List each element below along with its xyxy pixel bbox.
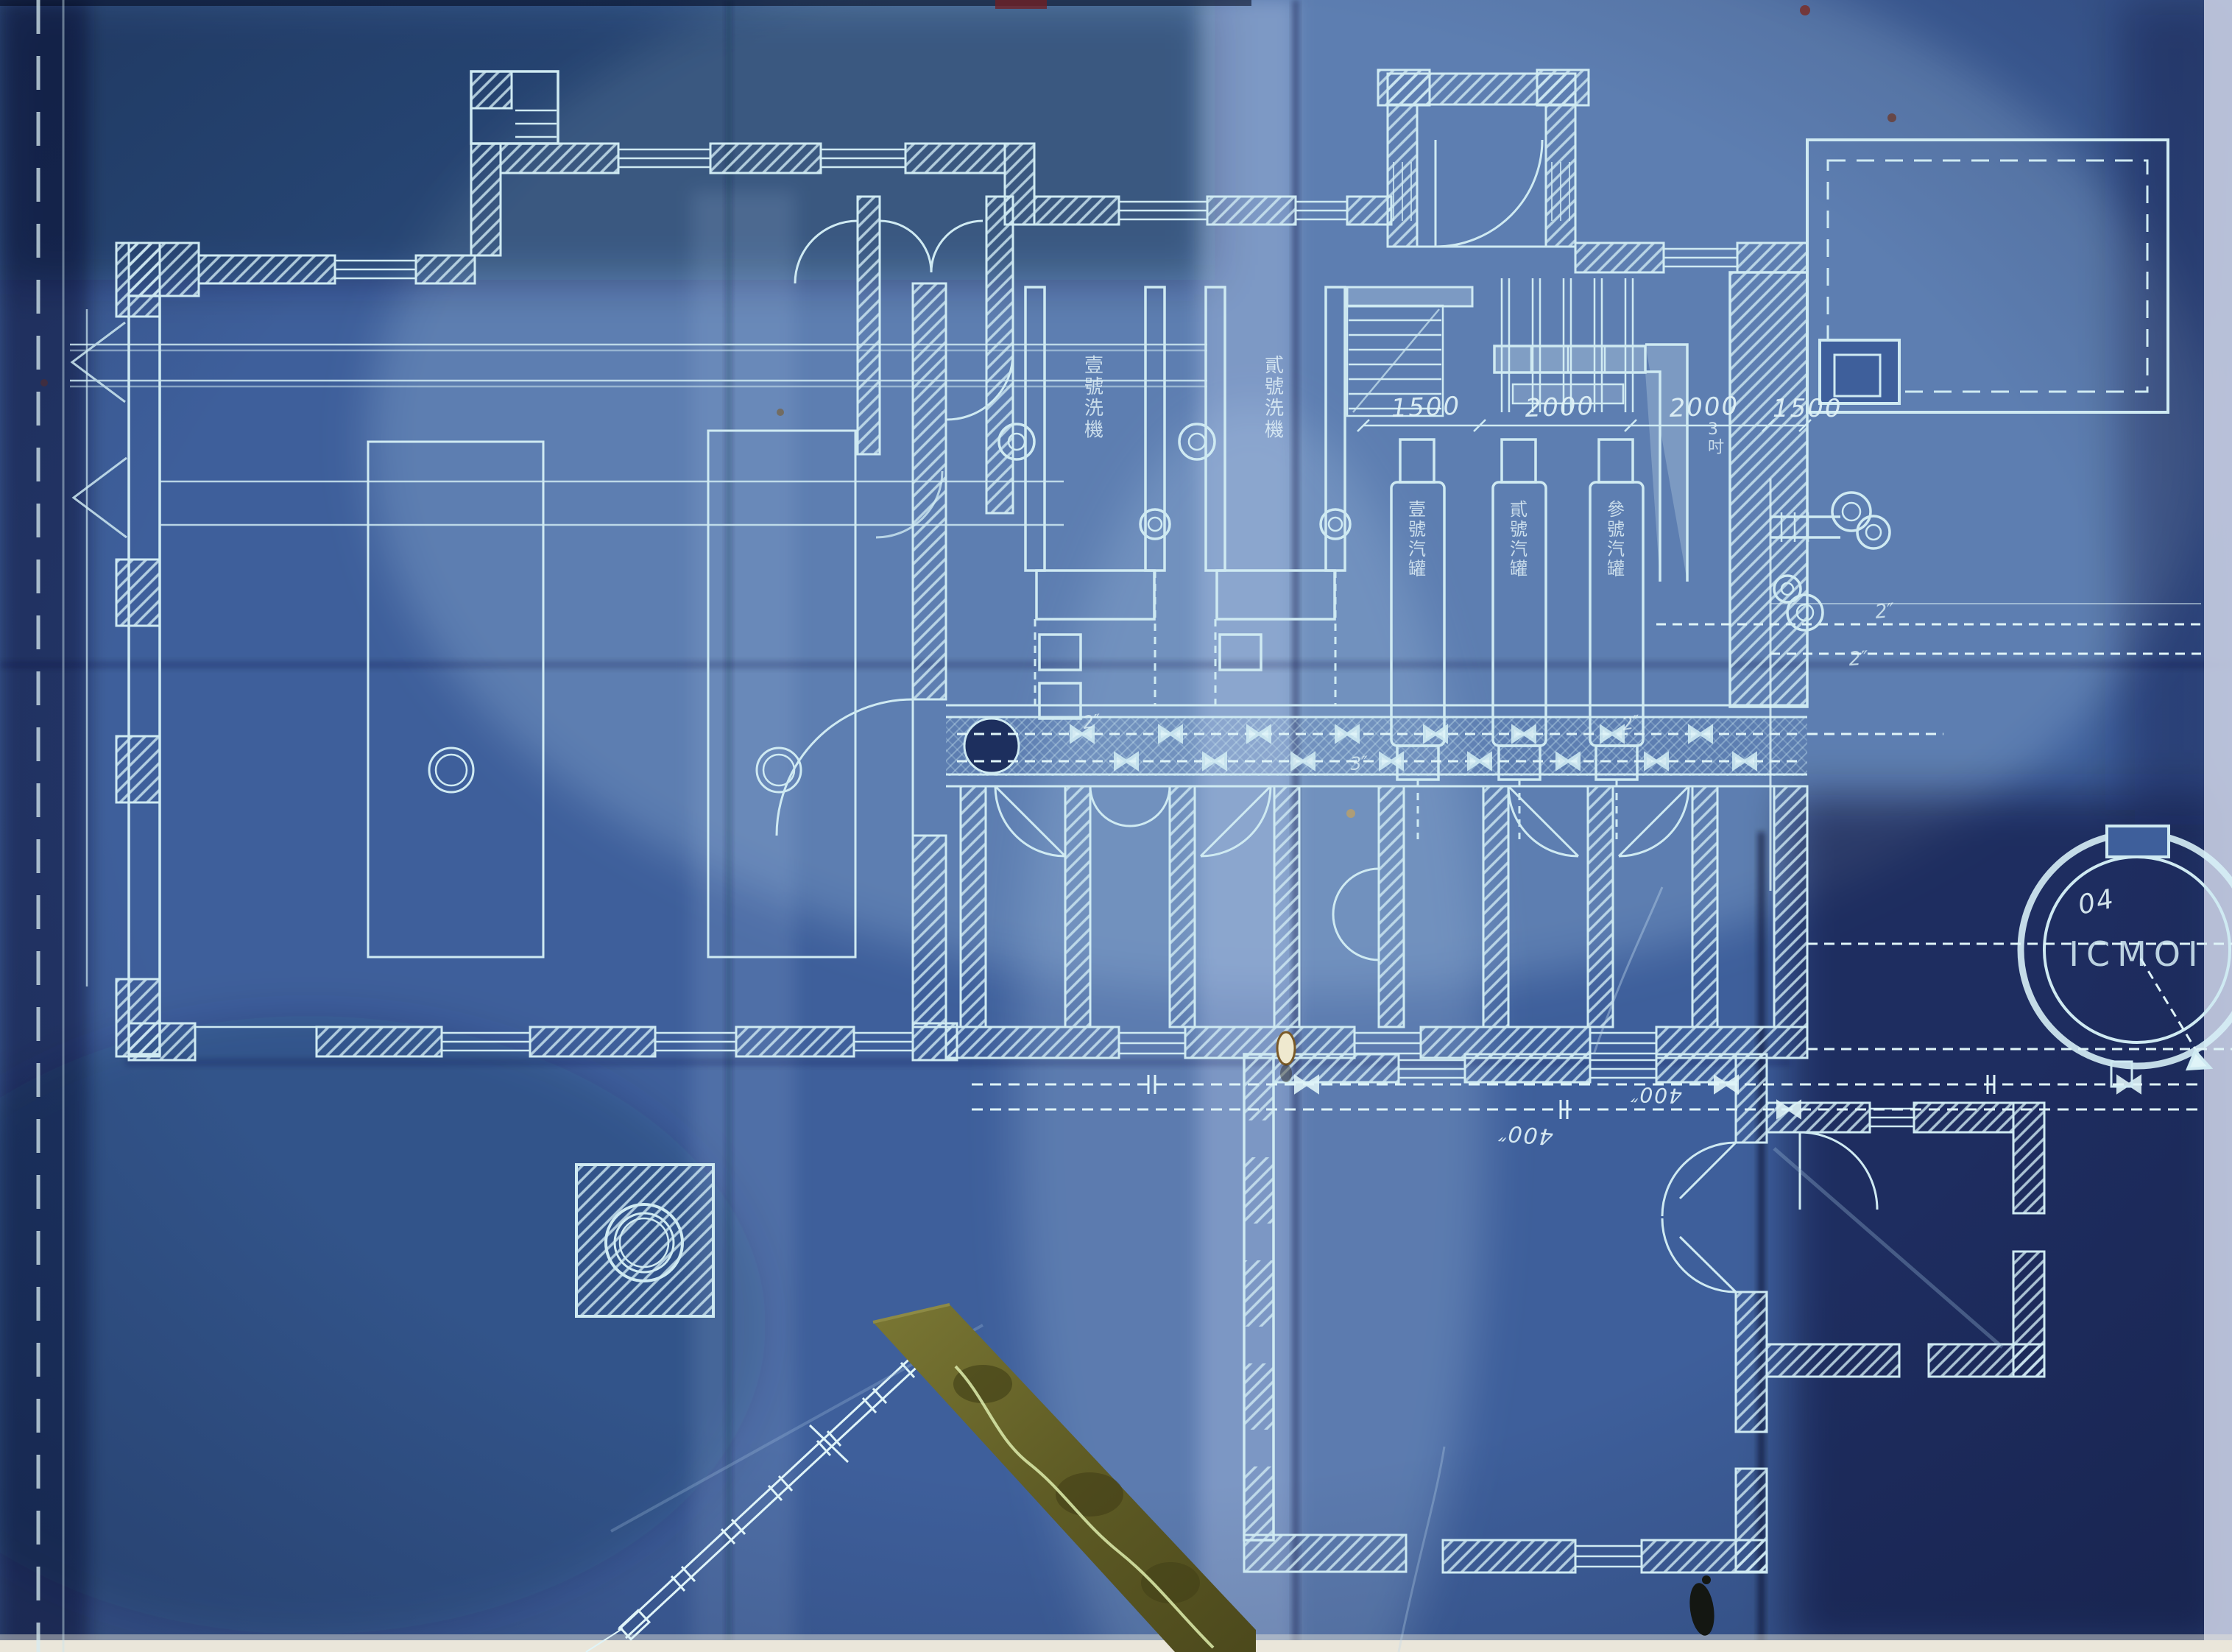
pipe-size-2: 3″ — [1349, 752, 1369, 774]
pipe-dim-400-main: 400″ — [1496, 1119, 1554, 1150]
blueprint-photo: 壹號洗機 貳號洗機 壹號汽罐 貳號汽罐 參號汽罐 3吋 1500 2000 20… — [0, 0, 2232, 1652]
east-thick-wall — [1730, 272, 1807, 707]
table-edge-bottom — [0, 1640, 2232, 1652]
boiler-2-label: 貳號汽罐 — [1510, 499, 1528, 579]
tank-mark-center: ICMOI — [2069, 934, 2205, 974]
pipe-size-3: 2″ — [1620, 711, 1642, 735]
chimney-base — [576, 1165, 713, 1316]
paper-edge-right — [2204, 0, 2232, 1652]
dim-2000-a: 2000 — [1525, 392, 1595, 423]
dim-1500-right: 1500 — [1773, 394, 1843, 423]
pipe-gallery — [946, 705, 1807, 786]
boiler-3-label: 參號汽罐 — [1607, 499, 1625, 579]
paper-background — [0, 0, 2232, 1652]
dim-1500-left: 1500 — [1391, 392, 1461, 423]
pipe-size-1: 2″ — [1081, 710, 1102, 733]
pipe-size-5: 2″ — [1848, 647, 1869, 671]
machine-1-label: 壹號洗機 — [1084, 355, 1103, 441]
machine-2-label: 貳號洗機 — [1265, 355, 1284, 441]
gallery-manhole — [964, 719, 1019, 773]
dim-2000-b: 2000 — [1669, 392, 1740, 423]
pipe-size-4: 2″ — [1874, 599, 1896, 624]
pipe-dim-400-right: 400″ — [1628, 1082, 1682, 1108]
boiler-1-label: 壹號汽罐 — [1408, 499, 1426, 579]
